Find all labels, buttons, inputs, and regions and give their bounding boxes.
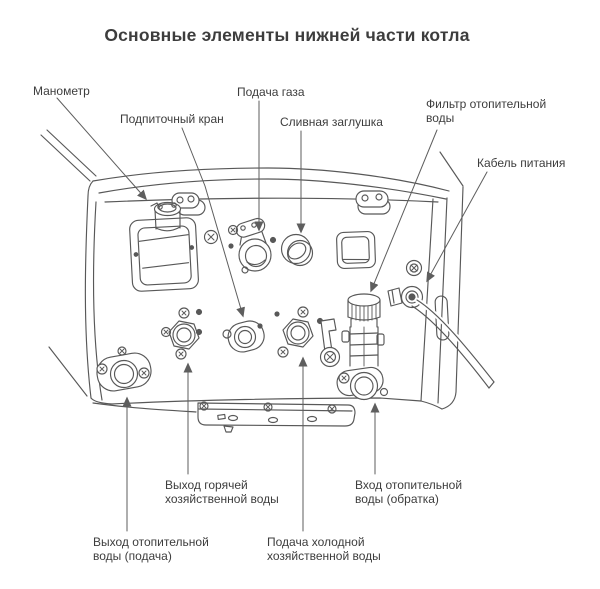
bezel-dot <box>190 246 194 250</box>
label-dhw-outlet-line2: хозяйственной воды <box>165 492 279 506</box>
bottom-edge-lower <box>93 403 196 412</box>
label-heating-outlet-line2: воды (подача) <box>93 549 172 563</box>
dot <box>271 238 276 243</box>
bezel-dot <box>134 253 138 257</box>
screw-cross <box>301 310 305 314</box>
label-heating-inlet-line2: воды (обратка) <box>355 492 439 506</box>
screw-cross <box>182 311 186 315</box>
screw-cross <box>231 228 235 232</box>
label-makeup-valve: Подпиточный кран <box>120 112 224 126</box>
gas-connector <box>229 217 276 273</box>
gas-flange-plate <box>235 217 267 239</box>
dot <box>275 312 279 316</box>
dot <box>258 324 262 328</box>
cable-end <box>489 382 494 388</box>
filter-tab-left <box>342 331 349 342</box>
panel-screw-left <box>205 231 218 244</box>
left-edge-outer <box>85 196 91 398</box>
left-top-edge-inner <box>47 130 96 176</box>
gland-hex <box>388 288 402 306</box>
cold-supply-fitting <box>275 307 323 357</box>
drain-plug-fitting <box>282 235 313 266</box>
dhw-outlet-fitting <box>162 308 202 359</box>
right-top-edge <box>440 152 463 186</box>
screw-cross <box>120 349 124 353</box>
right-edge-inner <box>421 199 433 401</box>
label-heating-inlet-line1: Вход отопительной <box>355 478 462 492</box>
mounting-plate <box>198 402 355 432</box>
dot <box>229 244 233 248</box>
mounting-lug-right <box>356 191 390 214</box>
filter-cap-ribs <box>352 304 376 321</box>
power-cable-leader <box>427 172 487 281</box>
valve-outer <box>235 327 256 348</box>
screw-cross <box>281 350 285 354</box>
screw-icon <box>376 194 382 200</box>
dot <box>197 310 202 315</box>
boiler-bottom-diagram: Основные элементы нижней части котла <box>0 0 600 589</box>
heating-outlet-pipe <box>94 347 153 393</box>
manual-page: Основные элементы нижней части котла <box>0 0 600 589</box>
plate-tab <box>224 426 233 432</box>
filter-cap-top <box>348 294 380 306</box>
label-heating-filter-line1: Фильтр отопительной <box>426 97 546 111</box>
manometer-assembly <box>129 203 199 292</box>
label-drain-plug: Сливная заглушка <box>280 115 383 129</box>
screw-cross <box>179 352 183 356</box>
page-title: Основные элементы нижней части котла <box>104 25 469 45</box>
dot <box>381 389 388 396</box>
lug-front <box>356 191 388 207</box>
label-manometer: Манометр <box>33 84 90 98</box>
panel-screw-right <box>407 261 422 276</box>
label-dhw-outlet-line1: Выход горячей <box>165 478 248 492</box>
label-heating-filter-line2: воды <box>426 111 454 125</box>
leader-lines <box>57 98 487 531</box>
left-top-edge-outer <box>41 135 90 181</box>
makeup-valve-fitting <box>223 318 267 355</box>
screw-icon <box>177 197 183 203</box>
screw-icon <box>362 195 368 201</box>
dot <box>197 330 202 335</box>
square-opening <box>336 231 375 268</box>
label-gas-supply: Подача газа <box>237 85 305 99</box>
label-cold-supply-line2: хозяйственной воды <box>267 549 381 563</box>
manometer-bezel <box>129 217 199 291</box>
screw-cross <box>164 330 168 334</box>
cable-line-bottom <box>412 306 489 388</box>
bottom-edge <box>91 398 421 404</box>
screw-icon <box>188 196 194 202</box>
gland-core <box>409 294 415 300</box>
left-corner-arc <box>88 181 93 196</box>
right-edge-mid <box>438 198 447 403</box>
label-cold-supply-line1: Подача холодной <box>267 535 365 549</box>
left-bottom-diagonal <box>49 347 87 396</box>
rim-mid-curve <box>99 179 446 199</box>
bottom-right-corner <box>421 401 442 409</box>
heating-filter-assembly <box>321 294 388 400</box>
cable-gland <box>388 287 423 308</box>
label-heating-outlet-line1: Выход отопительной <box>93 535 209 549</box>
cable-mask <box>417 300 494 382</box>
boiler-drawing <box>41 130 494 432</box>
label-power-cable: Кабель питания <box>477 156 565 170</box>
